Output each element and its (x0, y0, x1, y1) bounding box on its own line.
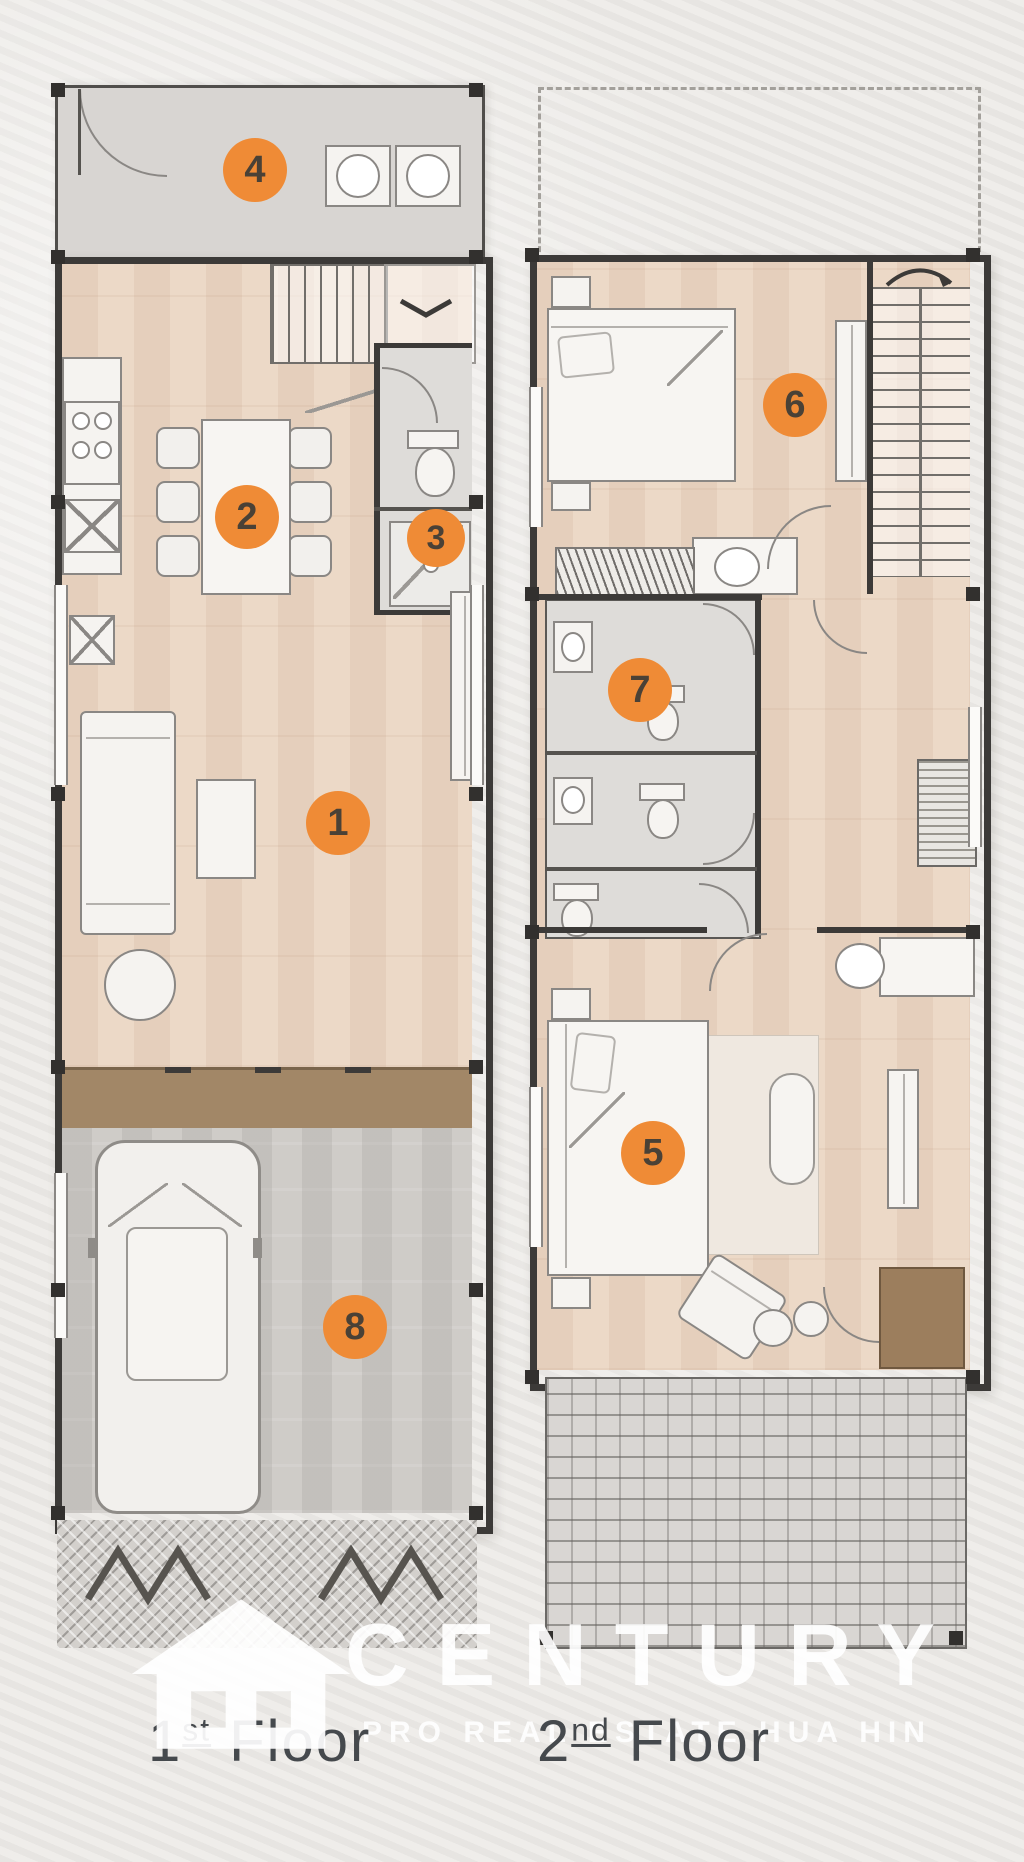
door-track-mark (255, 1067, 281, 1073)
window (54, 585, 68, 785)
room-marker-wc: 3 (407, 509, 465, 567)
room-marker-bedroom2: 5 (621, 1121, 685, 1185)
floor-plan-canvas: 1 2 3 4 8 (0, 0, 1024, 1862)
door-track-mark (345, 1067, 371, 1073)
wall-post (51, 495, 65, 509)
window (529, 387, 543, 527)
bathroom-divider (545, 867, 757, 871)
bench (769, 1073, 815, 1185)
wall-post (51, 83, 65, 97)
sofa (80, 711, 176, 935)
second-floor-number: 2 (537, 1709, 571, 1774)
washer-drum-icon (336, 154, 380, 198)
wc-wall (374, 507, 472, 511)
window (54, 1173, 68, 1338)
stove (64, 401, 120, 485)
wall-post (966, 587, 980, 601)
burner-icon (72, 412, 90, 430)
dining-chair (288, 481, 332, 523)
sofa-armrest-line (86, 903, 170, 905)
wall-post (51, 1060, 65, 1074)
car-roof (126, 1227, 228, 1381)
wall-post (51, 787, 65, 801)
wall-post (525, 925, 539, 939)
washer (325, 145, 391, 207)
sofa-armrest-line (86, 737, 170, 739)
wall-post (469, 1060, 483, 1074)
toilet-bowl (647, 799, 679, 839)
laundry-sink (395, 145, 461, 207)
hall-wall (537, 594, 762, 600)
car (95, 1140, 261, 1514)
car-mirror (253, 1238, 262, 1258)
bedroom5-wall (817, 927, 972, 933)
pillow (557, 331, 615, 378)
room-marker-garage: 8 (323, 1295, 387, 1359)
wall-post (525, 248, 539, 262)
room-marker-dining: 2 (215, 485, 279, 549)
bed (547, 308, 736, 482)
blanket-fold-line (569, 1092, 625, 1148)
window (529, 1087, 543, 1247)
terrace-threshold (879, 1267, 965, 1369)
staircase-first-floor (270, 264, 388, 364)
dining-chair (156, 427, 200, 469)
blanket-fold-line (667, 330, 723, 386)
car-mirror (88, 1238, 97, 1258)
car-windshield-line (108, 1183, 168, 1227)
vanity-sink-bowl-icon (714, 547, 760, 587)
nightstand (551, 988, 591, 1020)
second-floor-label: 2nd Floor (537, 1708, 771, 1775)
nightstand (551, 276, 591, 308)
wall-post (469, 1506, 483, 1520)
window (968, 707, 982, 847)
staircase-second-floor (873, 287, 970, 577)
kitchen-cabinet (69, 615, 115, 665)
room-marker-living: 1 (306, 791, 370, 855)
wall-post (469, 83, 483, 97)
side-table (793, 1301, 829, 1337)
wall-post (966, 1370, 980, 1384)
stair-direction-arrow-icon (879, 263, 959, 289)
wardrobe-door-line (851, 325, 853, 477)
tv-console-line (464, 596, 466, 776)
first-floor-plan: 1 2 3 4 8 (55, 85, 479, 1650)
wall-post (469, 1283, 483, 1297)
burner-icon (94, 412, 112, 430)
nightstand (551, 1277, 591, 1309)
burner-icon (94, 441, 112, 459)
wc-wall (374, 343, 380, 615)
house-logo-icon (126, 1596, 356, 1752)
bed-headboard (551, 312, 728, 328)
wardrobe-door-line (903, 1074, 905, 1204)
door-track-mark (165, 1067, 191, 1073)
side-table (104, 949, 176, 1021)
dining-chair (156, 535, 200, 577)
vanity-counter (879, 937, 975, 997)
wall-post (966, 248, 980, 262)
second-floor-plan: 5 6 7 (527, 87, 990, 1645)
window (470, 585, 484, 785)
second-floor-ordinal: nd (571, 1712, 610, 1748)
vanity-sink-bowl-icon (835, 943, 885, 989)
stair-direction-arrow-icon (395, 293, 457, 323)
bathroom-divider (545, 751, 757, 755)
open-void-dashed-outline (538, 87, 981, 261)
wall-post (51, 250, 65, 264)
sink-bowl-icon (561, 632, 585, 662)
balcony-door-leaf (78, 89, 81, 175)
car-windshield-line (182, 1183, 242, 1227)
kitchen-sink (64, 499, 120, 553)
wall-post (469, 495, 483, 509)
wall-post (525, 1370, 539, 1384)
entry-threshold (62, 1067, 472, 1134)
wardrobe (887, 1069, 919, 1209)
bedroom5-wall (537, 927, 707, 933)
wardrobe (835, 320, 867, 482)
burner-icon (72, 441, 90, 459)
side-table (753, 1309, 793, 1347)
wall-post (469, 787, 483, 801)
bed-headboard (551, 1024, 567, 1268)
second-floor-word: Floor (629, 1709, 771, 1774)
wc-wall (374, 343, 472, 348)
pillow (570, 1032, 617, 1094)
dining-chair (156, 481, 200, 523)
wall-post (525, 587, 539, 601)
toilet-bowl (415, 447, 455, 497)
wall-post (51, 1506, 65, 1520)
bathroom-sink (553, 621, 593, 673)
bed-bench (551, 482, 591, 511)
room-marker-bathrooms: 7 (608, 658, 672, 722)
coffee-table (196, 779, 256, 879)
closet-hanging-rail (555, 547, 695, 597)
watermark-brand: CENTURY (345, 1604, 963, 1706)
room-marker-balcony: 4 (223, 138, 287, 202)
wall-post (966, 925, 980, 939)
room-marker-bedroom1: 6 (763, 373, 827, 437)
laundry-sink-bowl-icon (406, 154, 450, 198)
bathroom-wall (755, 599, 761, 935)
dining-chair (288, 427, 332, 469)
wall-post (51, 1283, 65, 1297)
wall-post (469, 250, 483, 264)
dining-chair (288, 535, 332, 577)
bathroom-sink (553, 777, 593, 825)
sink-bowl-icon (561, 786, 585, 814)
